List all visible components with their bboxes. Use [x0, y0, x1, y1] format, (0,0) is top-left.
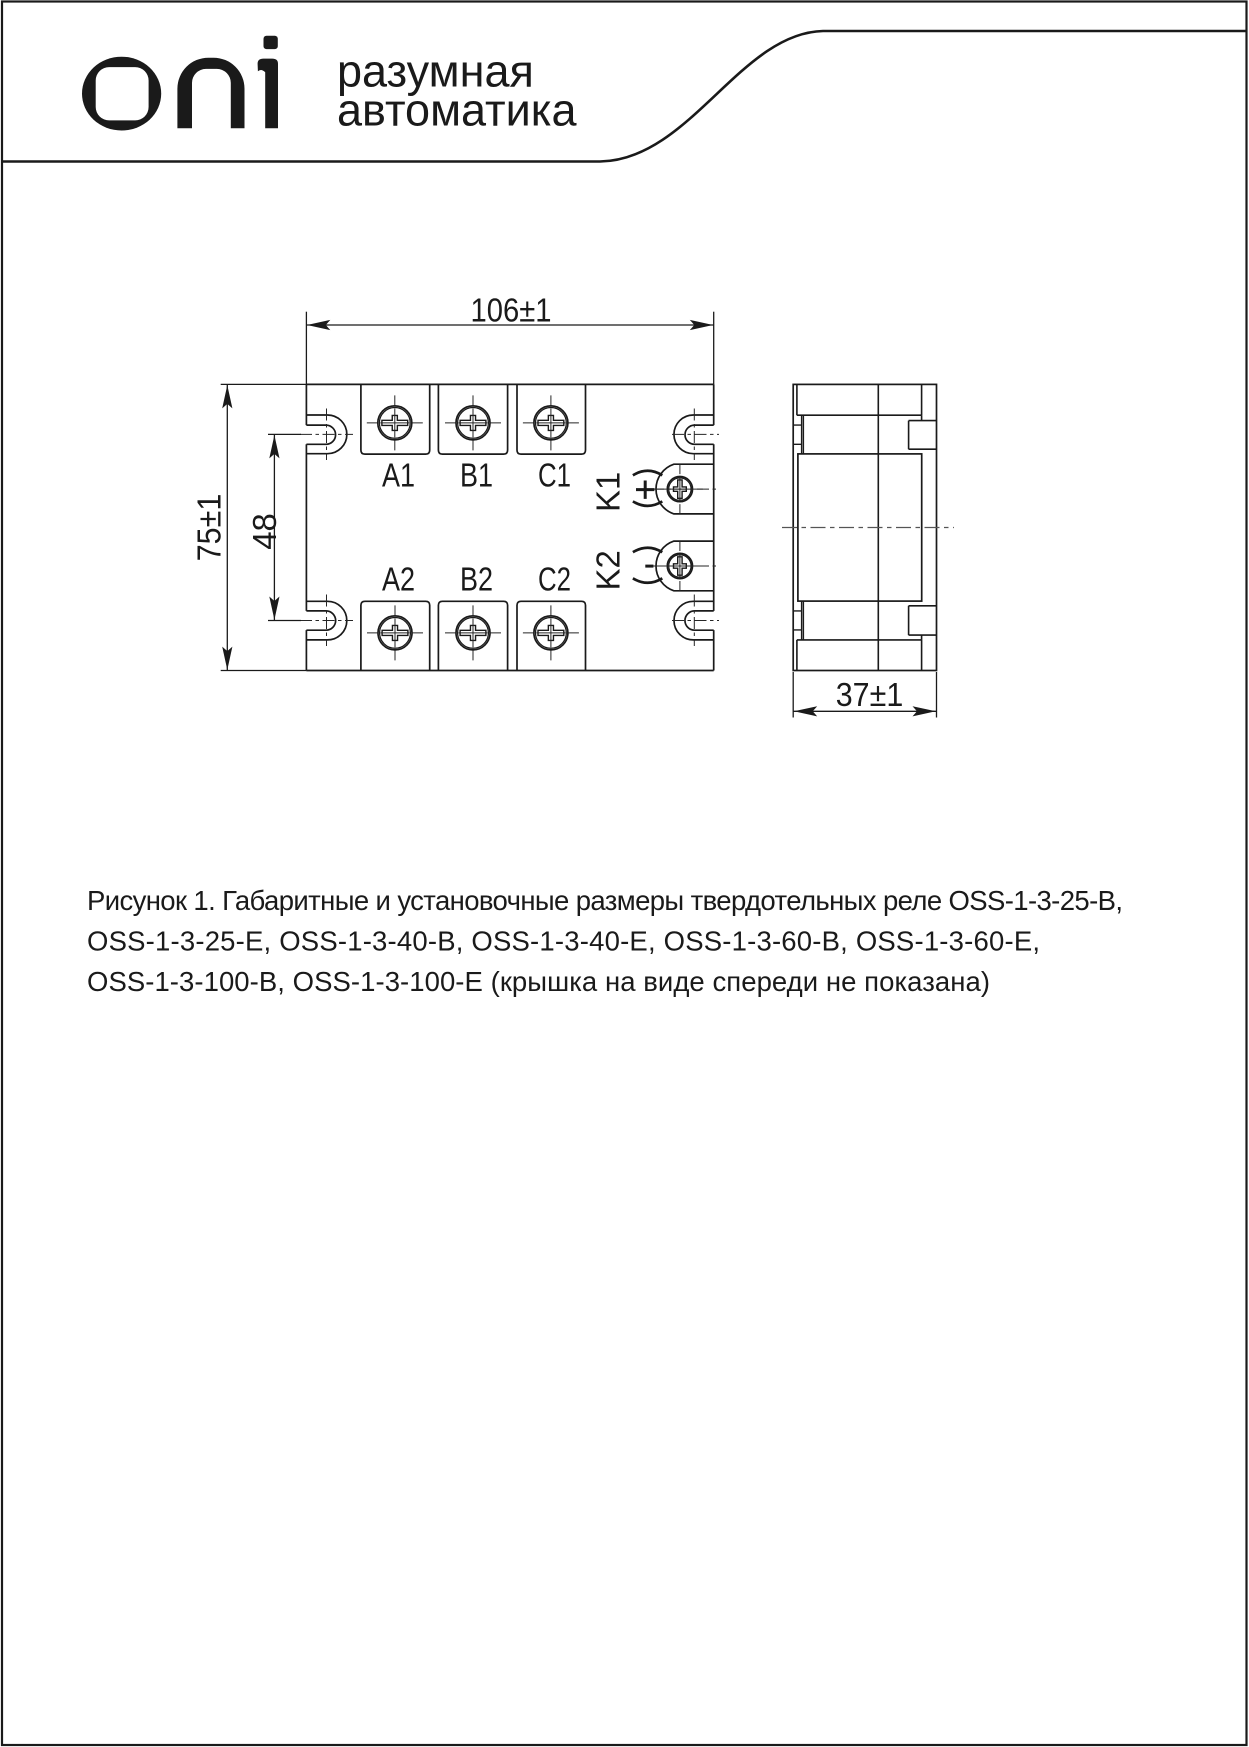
svg-text:OSS-1-3-25-E, OSS-1-3-40-B, OS: OSS-1-3-25-E, OSS-1-3-40-B, OSS-1-3-40-E…: [87, 925, 1040, 956]
svg-text:Рисунок 1. Габаритные и устано: Рисунок 1. Габаритные и установочные раз…: [87, 885, 1123, 916]
svg-text:C2: C2: [538, 560, 571, 597]
svg-text:A1: A1: [382, 457, 415, 494]
svg-text:75±1: 75±1: [191, 494, 228, 562]
svg-text:37±1: 37±1: [836, 676, 904, 713]
svg-text:OSS-1-3-100-B, OSS-1-3-100-E (: OSS-1-3-100-B, OSS-1-3-100-E (крышка на …: [87, 966, 990, 997]
svg-text:B2: B2: [460, 560, 493, 597]
svg-text:A2: A2: [382, 560, 415, 597]
svg-text:K2: K2: [590, 550, 627, 590]
svg-text:K1: K1: [590, 472, 627, 512]
svg-text:48: 48: [246, 513, 283, 550]
svg-text:B1: B1: [460, 457, 493, 494]
svg-text:C1: C1: [538, 457, 571, 494]
svg-text:106±1: 106±1: [471, 292, 552, 329]
svg-text:автоматика: автоматика: [337, 85, 577, 136]
